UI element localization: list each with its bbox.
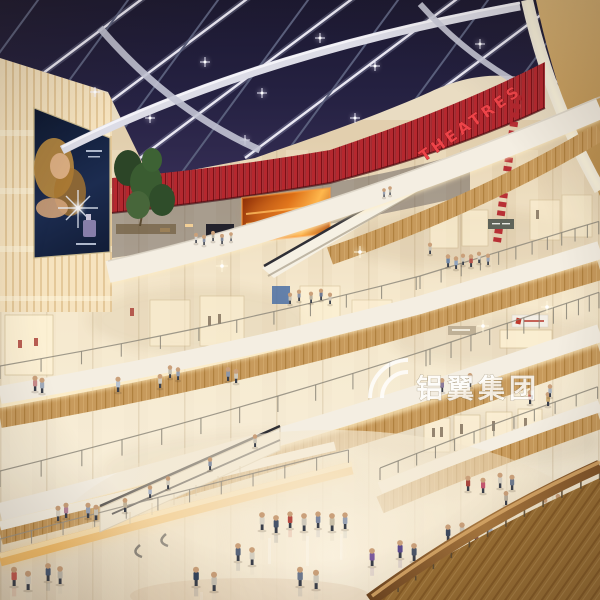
mall-atrium-rendering: THEATRES [0, 0, 600, 600]
mall-atrium-photo: THEATRES [0, 0, 600, 600]
vignette [0, 0, 600, 600]
